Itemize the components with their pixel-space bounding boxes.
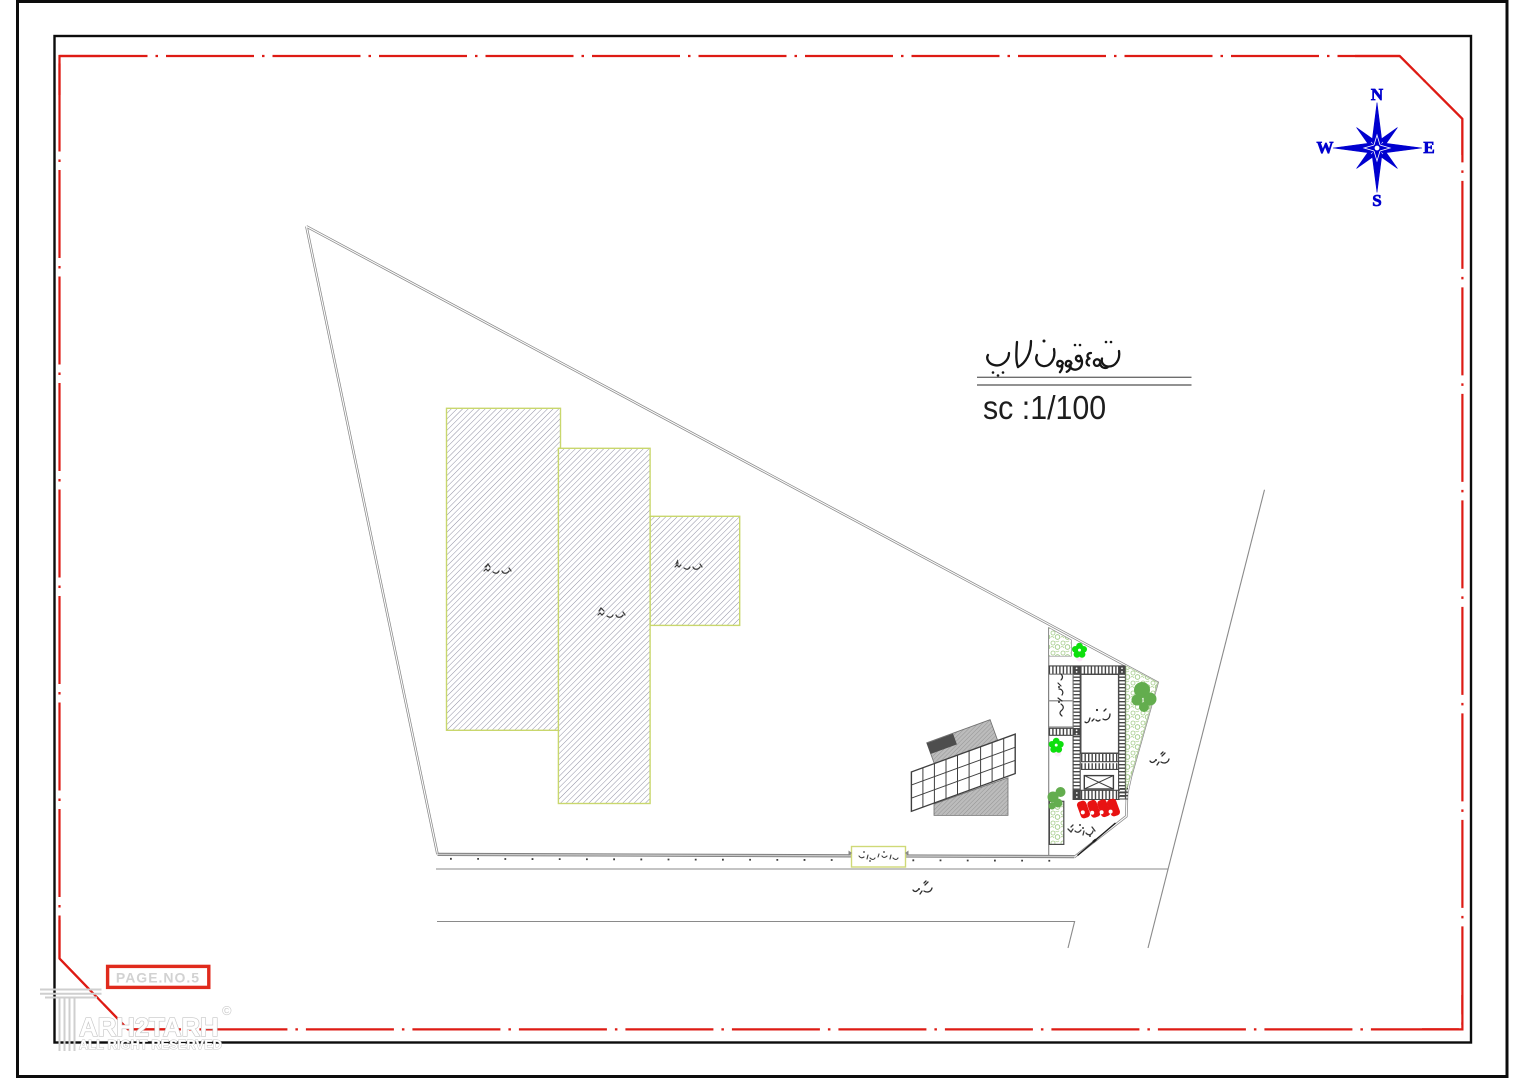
svg-text:PAGE.NO.5: PAGE.NO.5 [116, 970, 200, 986]
svg-text:W: W [1317, 138, 1334, 157]
svg-text:ALL RIGHT RESERVED: ALL RIGHT RESERVED [79, 1038, 222, 1052]
svg-text:©: © [222, 1003, 232, 1018]
svg-text:sc :1/100: sc :1/100 [983, 389, 1106, 426]
svg-text:S: S [1372, 191, 1381, 210]
svg-text:N: N [1371, 85, 1384, 104]
svg-text:E: E [1423, 138, 1434, 157]
